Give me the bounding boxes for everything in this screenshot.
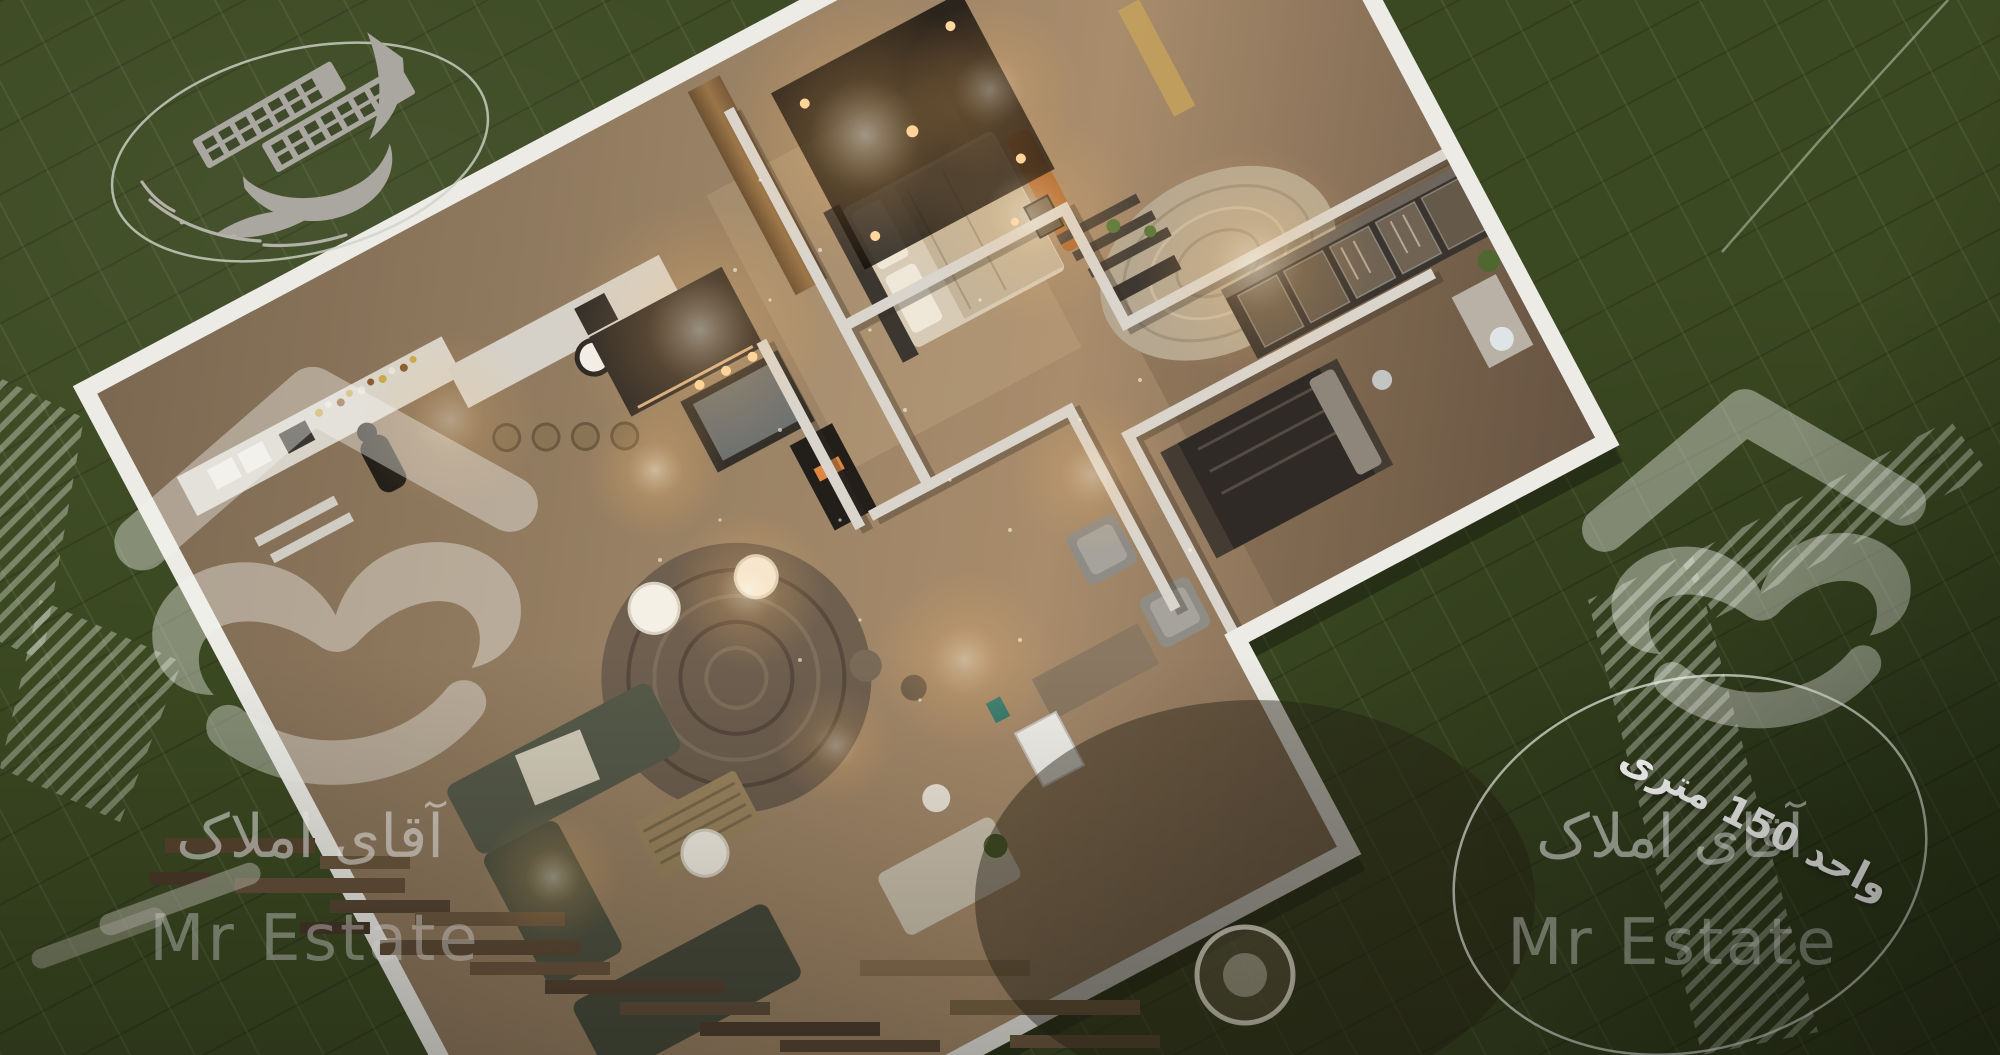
floorplan-3d-render xyxy=(0,0,2000,1055)
real-estate-render-scene: آقای املاک Mr Estate آقای املاک Mr Estat… xyxy=(0,0,2000,1055)
rattan-chair xyxy=(1197,927,1293,1023)
building-icon xyxy=(177,18,444,243)
field-marking-line xyxy=(1722,0,1948,252)
